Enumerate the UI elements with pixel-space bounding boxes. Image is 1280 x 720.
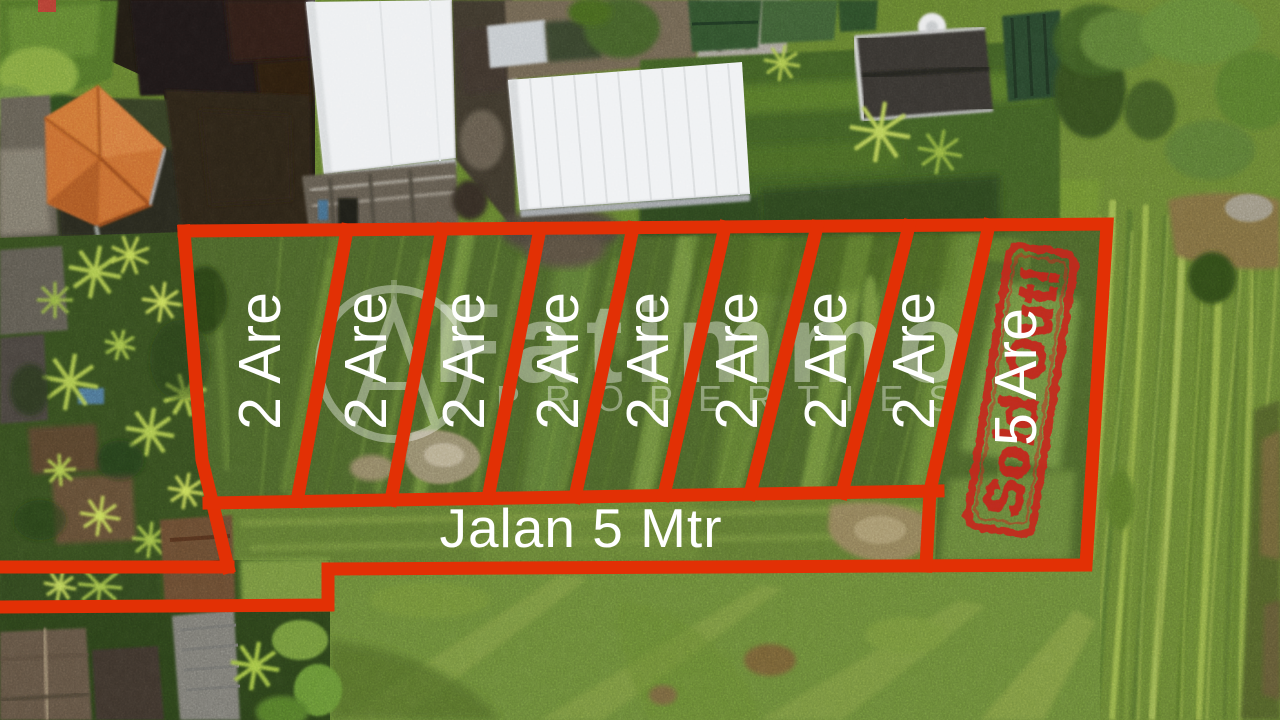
svg-text:2 Are: 2 Are — [615, 292, 681, 430]
svg-text:2 Are: 2 Are — [704, 292, 770, 430]
svg-text:2 Are: 2 Are — [333, 292, 399, 430]
svg-text:5 Are: 5 Are — [983, 308, 1049, 446]
svg-text:2 Are: 2 Are — [227, 292, 293, 430]
svg-text:Jalan 5 Mtr: Jalan 5 Mtr — [439, 497, 722, 559]
svg-text:2 Are: 2 Are — [793, 292, 859, 430]
svg-text:2 Are: 2 Are — [431, 292, 497, 430]
svg-text:2 Are: 2 Are — [881, 292, 947, 430]
svg-text:2 Are: 2 Are — [525, 292, 591, 430]
